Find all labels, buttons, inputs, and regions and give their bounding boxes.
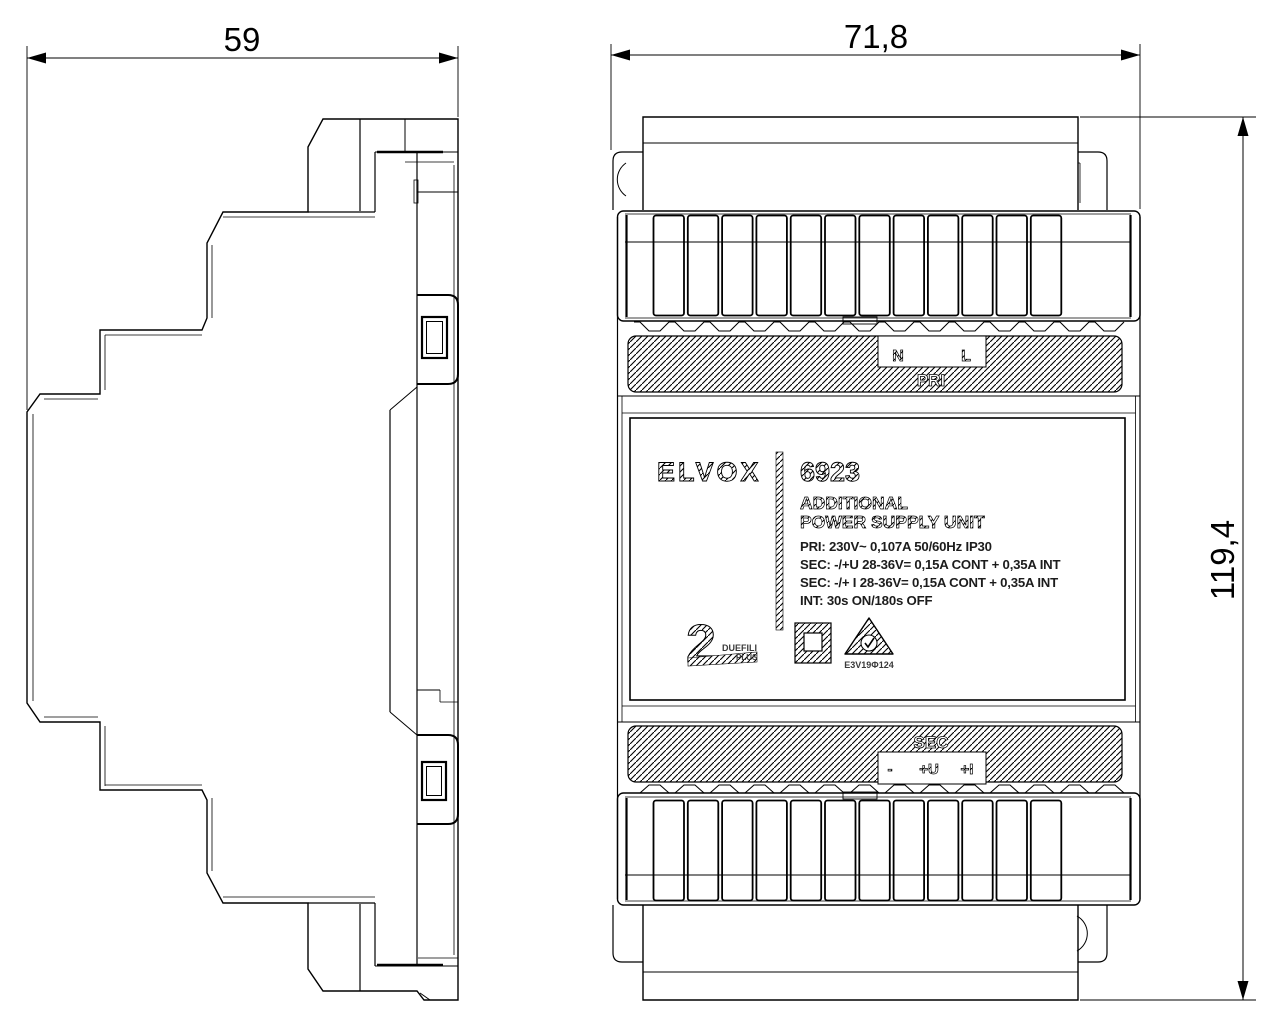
product-name-line1: ADDITIONAL bbox=[800, 493, 908, 513]
terminal-label-plus-i: +I bbox=[961, 761, 974, 778]
model-number: 6923 bbox=[800, 457, 860, 487]
terminal-slot bbox=[1031, 801, 1062, 901]
dim-front-width-label: 71,8 bbox=[844, 18, 908, 55]
terminal-slot bbox=[825, 801, 856, 901]
terminal-slot bbox=[894, 216, 925, 316]
terminal-label-l: L bbox=[961, 348, 971, 365]
terminal-slot bbox=[962, 801, 993, 901]
terminal-block-bottom bbox=[618, 792, 1141, 905]
terminal-slot bbox=[688, 216, 719, 316]
terminal-slot bbox=[928, 801, 959, 901]
brand-logo: ELVOX bbox=[657, 457, 762, 487]
terminal-slot bbox=[997, 801, 1028, 901]
terminal-slot bbox=[859, 216, 890, 316]
dim-height-label: 119,4 bbox=[1204, 520, 1241, 600]
spec-sec2: SEC: -/+ I 28-36V= 0,15A CONT + 0,35A IN… bbox=[800, 575, 1058, 590]
terminal-slot bbox=[654, 801, 685, 901]
terminal-slot bbox=[756, 216, 787, 316]
terminal-slot bbox=[894, 801, 925, 901]
label-divider bbox=[776, 452, 783, 630]
technical-drawing: N L PRI ELVOX 6923 ADDITIONAL POWER SUPP… bbox=[0, 0, 1280, 1024]
terminal-slot bbox=[688, 801, 719, 901]
terminal-slot bbox=[962, 216, 993, 316]
pri-terminal-band: N L PRI bbox=[628, 336, 1122, 392]
spec-pri: PRI: 230V~ 0,107A 50/60Hz IP30 bbox=[800, 539, 992, 554]
terminal-block-top bbox=[618, 211, 1141, 324]
front-view: N L PRI ELVOX 6923 ADDITIONAL POWER SUPP… bbox=[613, 117, 1140, 1000]
plus-text: PLUS bbox=[736, 653, 758, 662]
terminal-slot bbox=[791, 801, 822, 901]
sec-terminal-band: SEC - +U +I bbox=[628, 726, 1122, 784]
terminal-slot bbox=[1031, 216, 1062, 316]
dim-side-width-label: 59 bbox=[224, 21, 261, 58]
terminal-slot bbox=[859, 801, 890, 901]
spec-sec1: SEC: -/+U 28-36V= 0,15A CONT + 0,35A INT bbox=[800, 557, 1061, 572]
terminal-slot bbox=[756, 801, 787, 901]
terminal-slot bbox=[791, 216, 822, 316]
terminal-label-minus: - bbox=[888, 761, 893, 778]
terminal-slot bbox=[722, 801, 753, 901]
cert-code: E3V19Φ124 bbox=[844, 660, 893, 670]
duefili-text: DUEFILI bbox=[722, 643, 757, 653]
pri-band-label: PRI bbox=[917, 371, 945, 390]
terminal-label-plus-u: +U bbox=[919, 761, 939, 778]
terminal-slot bbox=[825, 216, 856, 316]
sec-band-label: SEC bbox=[914, 733, 949, 752]
terminal-slot bbox=[722, 216, 753, 316]
terminal-slot bbox=[654, 216, 685, 316]
drawing-canvas: N L PRI ELVOX 6923 ADDITIONAL POWER SUPP… bbox=[0, 0, 1280, 1024]
product-name-line2: POWER SUPPLY UNIT bbox=[800, 512, 985, 532]
spec-int: INT: 30s ON/180s OFF bbox=[800, 593, 932, 608]
terminal-slot bbox=[928, 216, 959, 316]
double-insulation-icon bbox=[795, 623, 831, 663]
terminal-slot bbox=[997, 216, 1028, 316]
terminal-label-n: N bbox=[892, 348, 904, 365]
